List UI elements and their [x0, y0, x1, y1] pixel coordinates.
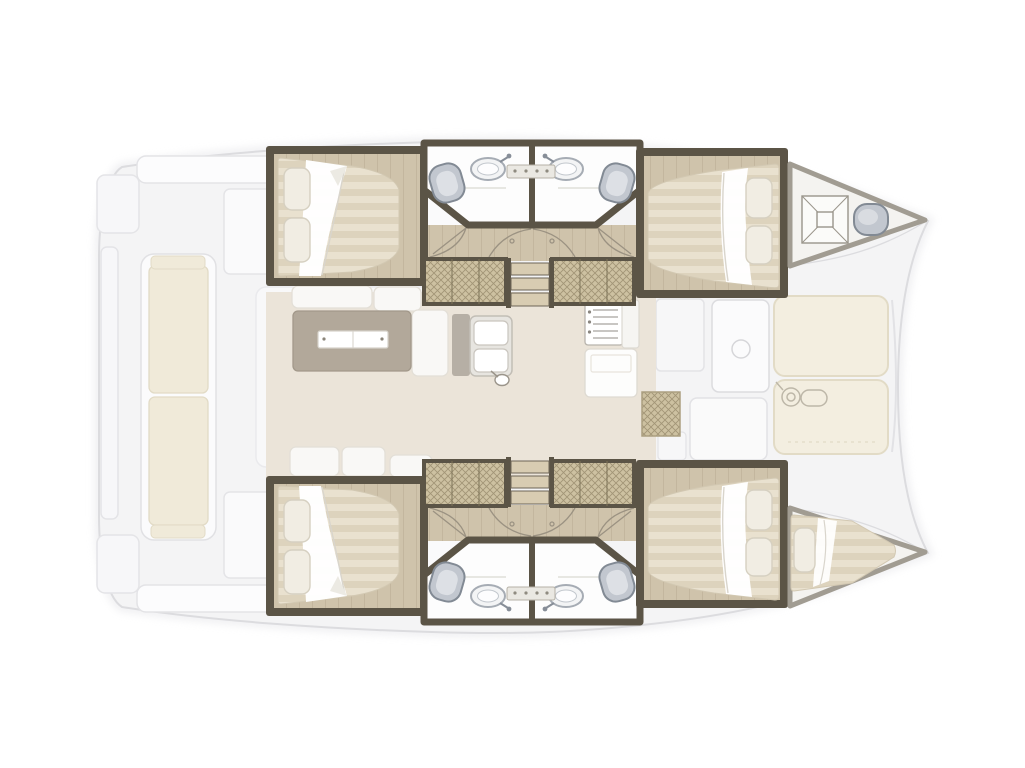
shelf-dot: [524, 591, 527, 594]
shelf-dot: [545, 169, 548, 172]
table-hinge-left: [322, 337, 325, 340]
sunpad-panel-bottom: [774, 380, 888, 454]
fwd-cockpit-panel: [690, 398, 767, 460]
table-hinge-right: [380, 337, 383, 340]
bow-berth-pillow: [794, 528, 815, 572]
wardrobe-starboard-fwd: [552, 461, 634, 506]
swim-step-bottom: [97, 535, 139, 593]
forepeak-fixture-icon: [854, 204, 888, 235]
shelf-dot: [535, 591, 538, 594]
starboard-fwd-pillow-2: [746, 538, 772, 576]
port-aft-pillow-2: [284, 218, 310, 262]
port-companionway: [424, 258, 634, 308]
starboard-fwd-cabin: [636, 460, 788, 608]
salon-door-mat: [642, 392, 680, 436]
shelf-dot: [513, 591, 516, 594]
fwd-cockpit-locker: [656, 299, 704, 371]
port-aft-cabin: [266, 146, 428, 286]
port-bathrooms: [424, 143, 640, 225]
port-fwd-cabin: [636, 148, 788, 298]
fwd-cockpit-door: [712, 300, 769, 392]
shelf-dot: [545, 591, 548, 594]
stove-icon: [585, 303, 623, 345]
shelf-dot: [513, 169, 516, 172]
salon-sofa-bottom-mid: [342, 447, 385, 476]
aft-bench-cushion-bottom: [149, 397, 208, 525]
floor-plan-canvas: [0, 0, 1025, 768]
floor-plan-page: [0, 0, 1025, 768]
starboard-corridor-floor: [424, 505, 640, 541]
swim-step-top: [97, 175, 139, 233]
wardrobe-port-fwd: [552, 259, 634, 304]
wardrobe-starboard-aft: [424, 461, 506, 506]
port-fwd-pillow-1: [746, 178, 772, 218]
shelf-dot: [535, 169, 538, 172]
starboard-bathrooms: [424, 540, 640, 622]
starboard-aft-pillow-2: [284, 550, 310, 594]
salon-sofa-side: [412, 310, 448, 376]
port-aft-pillow-1: [284, 168, 310, 210]
starboard-companionway: [424, 457, 634, 507]
port-fwd-pillow-2: [746, 226, 772, 264]
galley-sink-basin-top: [474, 321, 508, 345]
galley-sink-basin-bottom: [474, 349, 508, 372]
starboard-fwd-pillow-1: [746, 490, 772, 530]
galley-counter: [585, 349, 637, 397]
wardrobe-port-aft: [424, 259, 506, 304]
salon: [266, 286, 680, 478]
deck-hatch-icon: [802, 196, 848, 243]
galley-tall-unit: [622, 300, 639, 348]
port-bathroom-divider: [529, 143, 535, 225]
starboard-aft-cabin: [266, 476, 428, 616]
salon-sofa-top-left: [292, 286, 372, 308]
starboard-bathroom-divider: [529, 540, 535, 622]
steps-icon-port: [506, 258, 554, 308]
salon-sofa-bottom-left: [290, 447, 339, 476]
foredeck-sunpads: [774, 296, 896, 454]
starboard-aft-pillow-1: [284, 500, 310, 542]
aft-bench-pad-top: [151, 256, 205, 269]
steps-icon-starboard: [506, 457, 554, 507]
aft-bench-pad-bottom: [151, 525, 205, 538]
shelf-dot: [524, 169, 527, 172]
aft-bench-cushion-top: [149, 266, 208, 393]
sunpad-panel-top: [774, 296, 888, 376]
salon-table: [293, 311, 411, 371]
galley-side-panel: [452, 314, 470, 376]
salon-sofa-top-right: [374, 287, 421, 311]
transom-step: [101, 247, 118, 519]
